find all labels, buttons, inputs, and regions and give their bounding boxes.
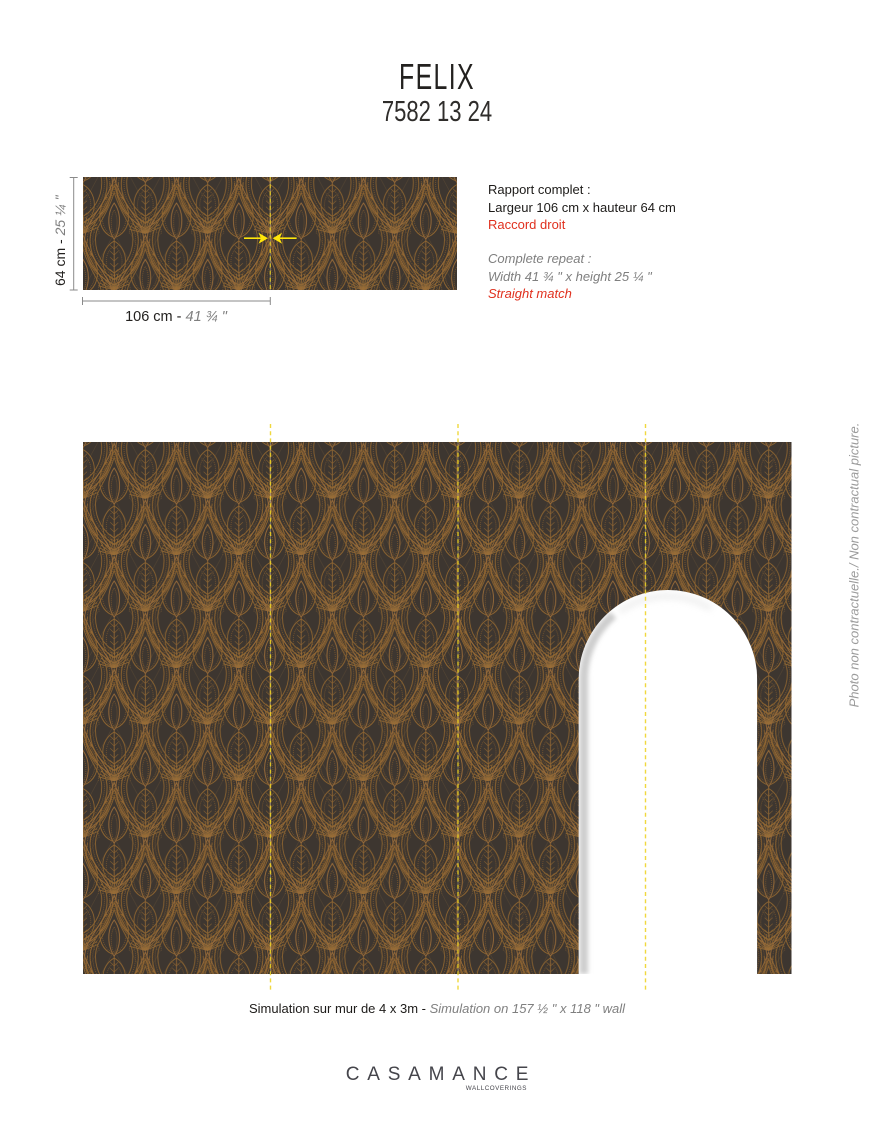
- svg-text:106 cm - 41 ¾ ": 106 cm - 41 ¾ ": [125, 309, 228, 325]
- svg-text:64 cm - 25 ¼ ": 64 cm - 25 ¼ ": [52, 194, 68, 286]
